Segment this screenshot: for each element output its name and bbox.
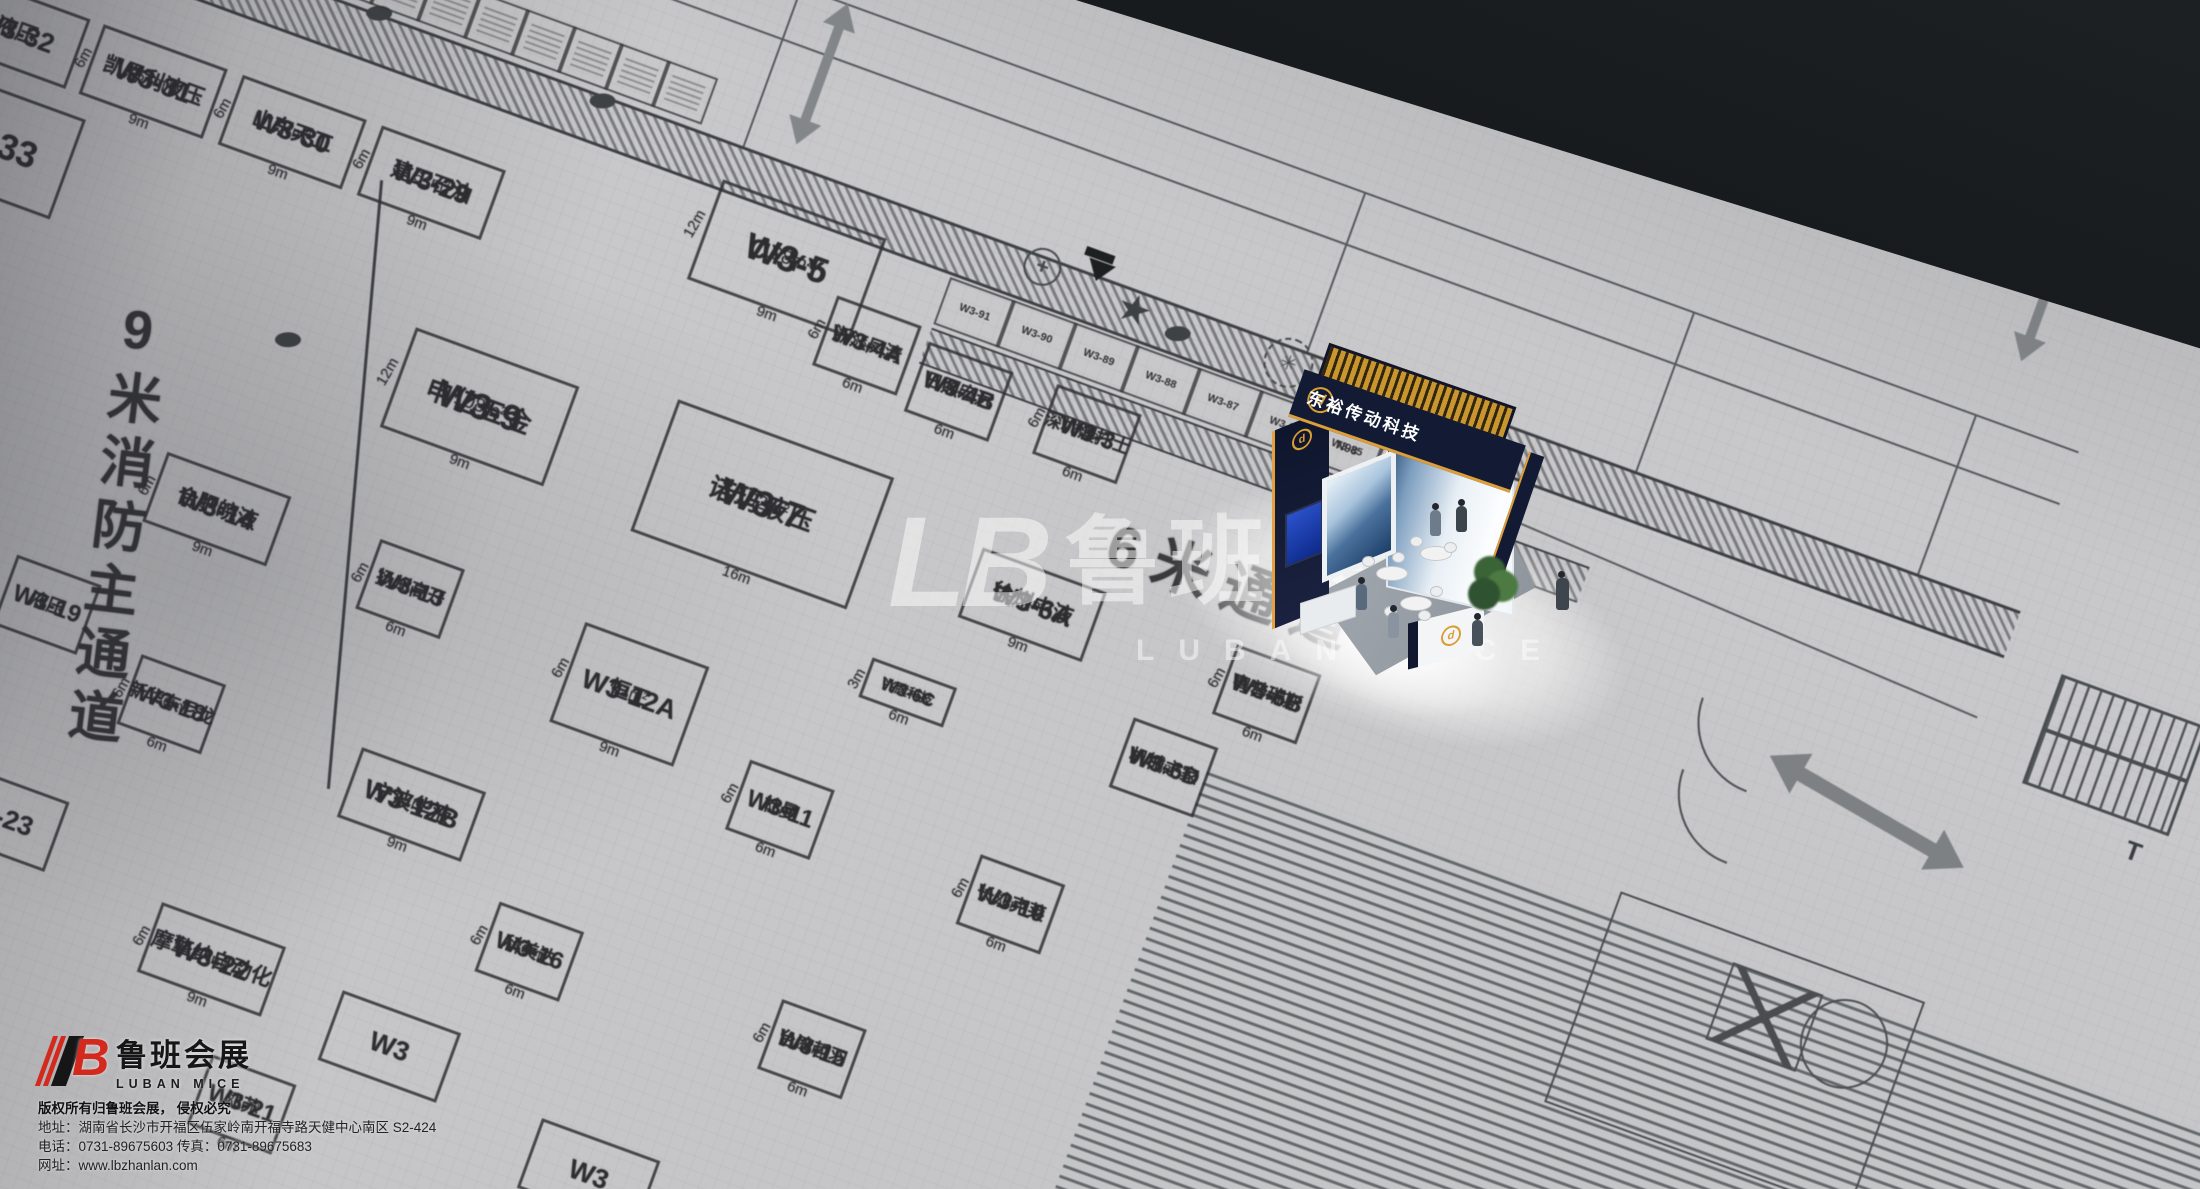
booth-width-dim: 6m xyxy=(144,733,169,756)
booth-depth-dim: 6m xyxy=(750,1020,775,1047)
booth-width-dim: 9m xyxy=(597,738,622,761)
booth-W3-22: W3-22摩擎纳自动化54m²9m6m xyxy=(137,902,286,1017)
booth-depth-dim: 6m xyxy=(548,655,573,682)
person-figure xyxy=(1356,584,1367,610)
booth-width-dim: 9m xyxy=(447,450,472,473)
t-marker: T xyxy=(2120,834,2146,869)
booth-W3-11: W3-11杜曼36m²6m6m xyxy=(725,760,835,860)
chair xyxy=(1362,556,1375,567)
column-oval-icon xyxy=(1165,326,1191,341)
small-booth-id: W3-88 xyxy=(1144,369,1179,391)
entrance-arrow-icon xyxy=(2000,212,2095,369)
booth-width-dim: 6m xyxy=(1060,463,1085,486)
booth-W3-33: W3-33 xyxy=(0,60,86,219)
wall-stub xyxy=(1917,414,1977,574)
small-booth-id: W3-89 xyxy=(1081,346,1116,368)
copyright-line: 版权所有归鲁班会展， 侵权必究 xyxy=(38,1099,436,1118)
booth-W3-6A: W3-6A徐州中液54m²9m xyxy=(958,547,1107,662)
address-line: 地址：湖南省长沙市开福区伍家岭南开福寺路天健中心南区 S2-424 xyxy=(38,1118,436,1137)
wall-stub xyxy=(1306,192,1366,352)
double-arrow-icon xyxy=(1752,725,1981,898)
booth-width-dim: 16m xyxy=(720,562,753,588)
column-oval-icon xyxy=(590,93,616,108)
luban-lb-logo-icon: B xyxy=(38,1034,102,1088)
person-figure xyxy=(1472,620,1483,646)
booth-id: W3-23 xyxy=(0,788,37,842)
booth-W3-12A: W3-12A恒工81m²9m6m xyxy=(549,622,709,767)
plant-icon xyxy=(1468,578,1500,610)
booth-W3-30: W3-30山东天工54m²9m6m xyxy=(218,75,367,190)
booth-width-dim: 9m xyxy=(404,211,429,234)
booth-W3: W3 xyxy=(517,1118,661,1189)
exhibit-booth-3d: d d 东裕传动科技 d xyxy=(1258,360,1553,685)
booth-width-dim: 6m xyxy=(1239,723,1264,746)
logo-sub: LUBAN MICE xyxy=(116,1077,252,1091)
floor-plan: + ★ ✳ 6米通道 9米消防主通道 T W3-33W3-32液压W3-31凯恩… xyxy=(0,0,2200,1189)
small-booth-id: W3-91 xyxy=(957,301,992,323)
chair xyxy=(1444,542,1457,553)
chair xyxy=(1430,586,1443,597)
booth-width-dim: 6m xyxy=(502,980,527,1003)
booth-depth-dim: 6m xyxy=(1204,665,1229,692)
booth-depth-dim: 6m xyxy=(948,875,973,902)
booth-width-dim: 6m xyxy=(785,1078,810,1101)
booth-logo-icon: d xyxy=(1441,623,1461,648)
booth-width-dim: 6m xyxy=(886,706,911,729)
chair xyxy=(1392,552,1405,563)
small-booth-id: W3-87 xyxy=(1206,392,1241,414)
website-line: 网址：www.lbzhanlan.com xyxy=(38,1156,436,1175)
booth-width-dim: 6m xyxy=(840,374,865,397)
person-figure xyxy=(1430,510,1441,536)
booth-depth-dim: 6m xyxy=(348,559,373,586)
phone-line: 电话：0731-89675603 传真：0731-89675683 xyxy=(38,1137,436,1156)
booth-exhibitor: 液压 xyxy=(27,589,68,620)
booth-width-dim: 9m xyxy=(126,110,151,133)
booth-W3-31: W3-31凯恩利液压54m²9m6m xyxy=(78,24,227,139)
staircase xyxy=(2022,674,2200,836)
booth-width-dim: 9m xyxy=(384,833,409,856)
wall-stub xyxy=(1635,311,1695,471)
column-oval-icon xyxy=(275,332,301,347)
booth-depth-dim: 12m xyxy=(680,207,709,241)
booth-id: W3 xyxy=(565,1154,613,1189)
booth-W3-10: W3-10长沙克莱36m²6m6m xyxy=(955,854,1065,954)
booth-depth-dim: 6m xyxy=(717,780,742,807)
booth-W3-16: W3-16科美达36m²6m6m xyxy=(474,902,584,1002)
booth-logo-icon: d xyxy=(1292,425,1312,453)
small-booth-id: W3-90 xyxy=(1019,324,1054,346)
chair xyxy=(1410,536,1423,547)
booth-width-dim: 6m xyxy=(383,617,408,640)
luban-logo-block: B 鲁班会展 LUBAN MICE 版权所有归鲁班会展， 侵权必究 地址：湖南省… xyxy=(38,1030,436,1175)
logo-brand: 鲁班会展 xyxy=(116,1030,252,1075)
person-figure xyxy=(1456,506,1467,532)
booth-width-dim: 9m xyxy=(265,161,290,184)
booth-W3-23: W3-23 xyxy=(0,757,70,872)
chair xyxy=(1418,610,1431,621)
booth-width-dim: 6m xyxy=(753,838,778,861)
booth-W3-9: W3-9申亿五金108m²9m12m xyxy=(380,327,580,486)
booth-W3-15: W3-15台湾哲羽36m²6m6m xyxy=(757,999,867,1099)
booth-depth-dim: 12m xyxy=(373,355,402,389)
booth-id: W3-33 xyxy=(0,104,42,176)
booth-W3-7: W3-7诺玛液压192m²16m xyxy=(630,399,894,609)
table xyxy=(1376,566,1408,581)
booth-W3-6C: W3-6C兆膛科技6m3m xyxy=(858,657,957,727)
booth-width-dim: 9m xyxy=(754,302,779,325)
booth-depth-dim: 3m xyxy=(844,666,869,693)
booth-depth-dim: 6m xyxy=(467,922,492,949)
exhibition-floorplan-render: + ★ ✳ 6米通道 9米消防主通道 T W3-33W3-32液压W3-31凯恩… xyxy=(0,0,2200,1189)
booth-W3-13: W3-13扬州高开36m²6m6m xyxy=(355,539,465,639)
booth-width-dim: 6m xyxy=(931,420,956,443)
booth-width-dim: 6m xyxy=(983,933,1008,956)
hall-left-wall xyxy=(327,180,383,789)
booth-width-dim: 9m xyxy=(184,988,209,1011)
booth-width-dim: 9m xyxy=(190,537,215,560)
booth-blue-screen xyxy=(1285,499,1323,568)
table xyxy=(1400,596,1432,611)
booth-width-dim: 9m xyxy=(1005,633,1030,656)
person-figure xyxy=(1556,578,1569,610)
booth-W3-12B: W3-12B宁波华液54m²9m xyxy=(337,747,486,862)
booth-W3-32: W3-32液压 xyxy=(0,0,91,89)
booth-W3-14: W3-14合肥皖液54m²9m6m xyxy=(142,452,291,567)
person-figure xyxy=(1388,612,1399,638)
